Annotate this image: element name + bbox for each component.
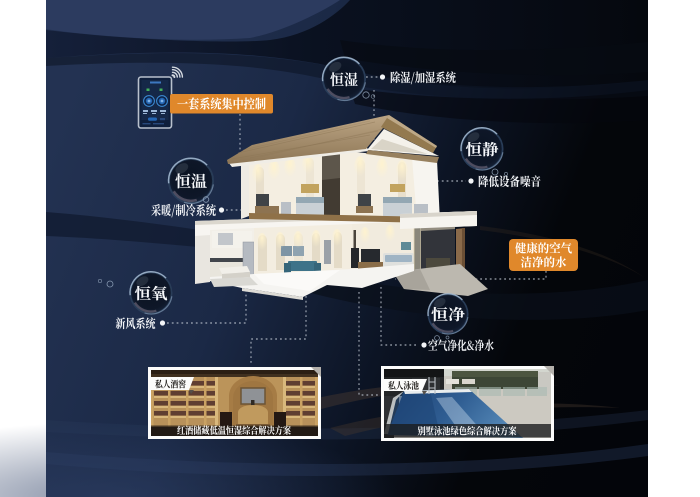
svg-text:一套系统集中控制: 一套系统集中控制: [177, 94, 266, 113]
svg-text:洁净的水: 洁净的水: [521, 254, 567, 271]
svg-text:恒静: 恒静: [466, 138, 500, 160]
svg-text:采暖/制冷系统: 采暖/制冷系统: [151, 200, 217, 219]
svg-text:降低设备噪音: 降低设备噪音: [478, 172, 541, 190]
svg-text:空气净化&净水: 空气净化&净水: [428, 336, 494, 354]
svg-text:别墅泳池绿色综合解决方案: 别墅泳池绿色综合解决方案: [418, 423, 517, 438]
svg-text:恒温: 恒温: [175, 169, 207, 192]
svg-text:除湿/加湿系统: 除湿/加湿系统: [390, 68, 457, 86]
svg-text:私人酒窖: 私人酒窖: [155, 377, 186, 391]
svg-text:恒氧: 恒氧: [135, 282, 169, 304]
svg-text:恒湿: 恒湿: [330, 69, 358, 90]
svg-text:恒净: 恒净: [431, 303, 466, 325]
svg-text:红酒储藏低温恒湿综合解决方案: 红酒储藏低温恒湿综合解决方案: [177, 422, 291, 437]
svg-text:私人泳池: 私人泳池: [388, 378, 419, 392]
svg-text:新风系统: 新风系统: [116, 314, 157, 332]
